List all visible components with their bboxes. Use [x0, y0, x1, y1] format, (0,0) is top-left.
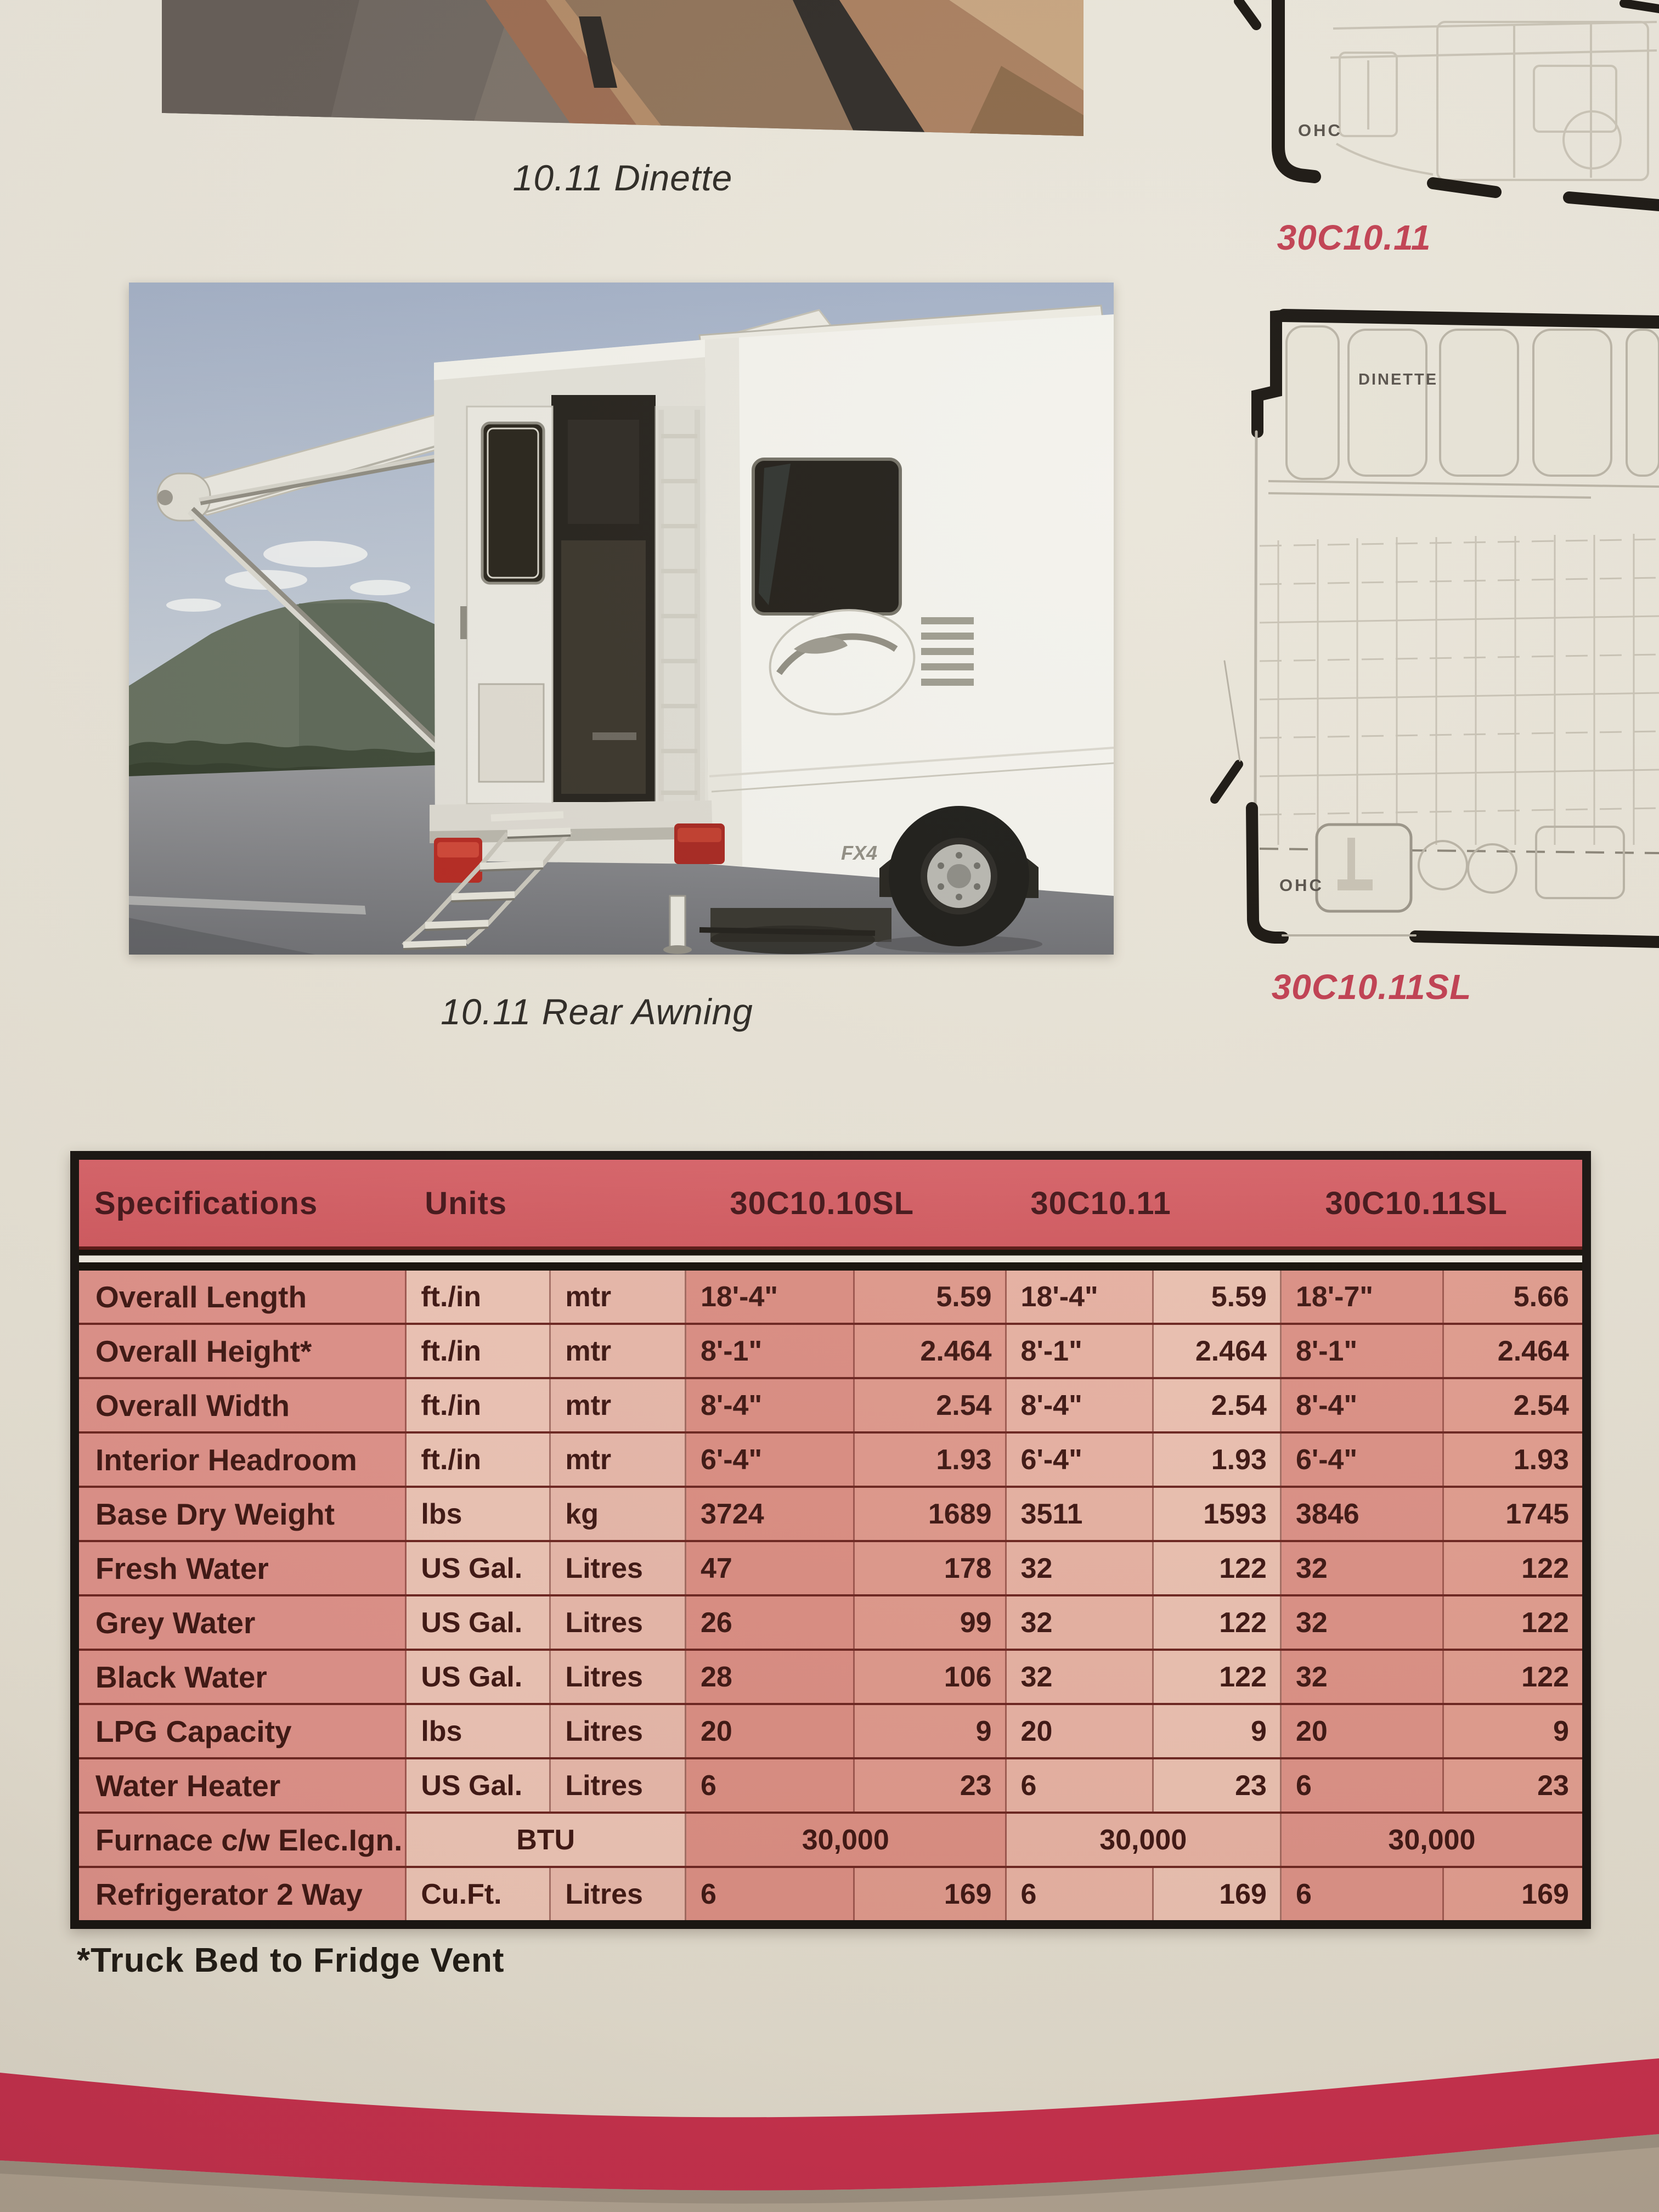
- spec-cell: 106: [855, 1651, 1007, 1703]
- spec-cell: 8'-1": [1282, 1325, 1444, 1377]
- spec-cell: 122: [1444, 1596, 1582, 1649]
- spec-cell: 30,000: [686, 1814, 1007, 1866]
- header-model-30c10-10sl: 30C10.10SL: [730, 1160, 914, 1246]
- dinette-photo-art: [162, 0, 1084, 136]
- spec-cell: 32: [1007, 1596, 1154, 1649]
- spec-cell: 20: [1282, 1705, 1444, 1757]
- page-bottom-edge: [0, 2030, 1659, 2212]
- spec-cell: ft./in: [407, 1434, 551, 1486]
- spec-cell: Interior Headroom: [79, 1434, 407, 1486]
- spec-cell: Water Heater: [79, 1759, 407, 1812]
- spec-cell: 3846: [1282, 1488, 1444, 1540]
- floorplan2-caption: 30C10.11SL: [1256, 967, 1487, 1007]
- spec-cell: Litres: [551, 1596, 686, 1649]
- spec-cell: lbs: [407, 1488, 551, 1540]
- spec-cell: 8'-4": [1007, 1379, 1154, 1431]
- spec-cell: 6: [1282, 1759, 1444, 1812]
- floorplan2-dinette-seats: [1286, 326, 1659, 479]
- spec-cell: Litres: [551, 1542, 686, 1594]
- table-row: Grey WaterUS Gal.Litres26993212232122: [79, 1596, 1582, 1651]
- spec-cell: 18'-4": [1007, 1271, 1154, 1323]
- header-units: Units: [425, 1160, 507, 1246]
- spec-cell: 8'-4": [686, 1379, 855, 1431]
- header-separator-band: [79, 1246, 1582, 1271]
- spec-cell: Cu.Ft.: [407, 1868, 551, 1920]
- spec-cell: 32: [1282, 1596, 1444, 1649]
- spec-cell: 122: [1444, 1651, 1582, 1703]
- spec-cell: 47: [686, 1542, 855, 1594]
- floorplan-30c10-11: [1207, 0, 1659, 211]
- spec-cell: 2.54: [855, 1379, 1007, 1431]
- spec-cell: 28: [686, 1651, 855, 1703]
- spec-cell: 32: [1282, 1651, 1444, 1703]
- floorplan2-ohc-label: OHC: [1279, 876, 1324, 895]
- spec-cell: kg: [551, 1488, 686, 1540]
- spec-cell: 169: [855, 1868, 1007, 1920]
- floorplan1-ohc-label: OHC: [1298, 121, 1342, 140]
- spec-cell: 3511: [1007, 1488, 1154, 1540]
- rear-awning-photo: FX4: [129, 283, 1114, 955]
- spec-cell: 32: [1007, 1542, 1154, 1594]
- fx4-decal: FX4: [841, 842, 877, 864]
- header-model-30c10-11: 30C10.11: [1030, 1160, 1171, 1246]
- spec-cell: mtr: [551, 1379, 686, 1431]
- table-row: Base Dry Weightlbskg37241689351115933846…: [79, 1488, 1582, 1542]
- floorplan1-walls: [1239, 0, 1659, 205]
- spec-cell: BTU: [407, 1814, 686, 1866]
- header-specifications: Specifications: [94, 1160, 318, 1246]
- undercarriage: [699, 908, 891, 954]
- spec-cell: 2.54: [1154, 1379, 1282, 1431]
- spec-cell: LPG Capacity: [79, 1705, 407, 1757]
- spec-cell: 9: [1154, 1705, 1282, 1757]
- floorplan1-fixtures: [1330, 22, 1657, 180]
- spec-cell: 1689: [855, 1488, 1007, 1540]
- spec-cell: 1.93: [1154, 1434, 1282, 1486]
- spec-cell: 9: [1444, 1705, 1582, 1757]
- table-row: Furnace c/w Elec.Ign.BTU30,00030,00030,0…: [79, 1814, 1582, 1868]
- spec-cell: 122: [1154, 1596, 1282, 1649]
- spec-cell: 122: [1154, 1542, 1282, 1594]
- spec-cell: mtr: [551, 1434, 686, 1486]
- table-row: Overall Lengthft./inmtr18'-4"5.5918'-4"5…: [79, 1271, 1582, 1325]
- spec-cell: 18'-4": [686, 1271, 855, 1323]
- spec-cell: Litres: [551, 1705, 686, 1757]
- spec-cell: 8'-1": [1007, 1325, 1154, 1377]
- camper-rear-door: [460, 395, 656, 804]
- spec-cell: lbs: [407, 1705, 551, 1757]
- rear-awning-caption: 10.11 Rear Awning: [323, 991, 871, 1032]
- spec-cell: mtr: [551, 1325, 686, 1377]
- spec-cell: 122: [1444, 1542, 1582, 1594]
- spec-cell: 1745: [1444, 1488, 1582, 1540]
- spec-cell: 32: [1007, 1651, 1154, 1703]
- table-row: LPG CapacitylbsLitres209209209: [79, 1705, 1582, 1759]
- spec-cell: 9: [855, 1705, 1007, 1757]
- spec-cell: 169: [1444, 1868, 1582, 1920]
- spec-cell: 169: [1154, 1868, 1282, 1920]
- spec-cell: 8'-1": [686, 1325, 855, 1377]
- spec-cell: 18'-7": [1282, 1271, 1444, 1323]
- floorplan2-sink: [1317, 825, 1411, 911]
- spec-cell: 122: [1154, 1651, 1282, 1703]
- table-row: Water HeaterUS Gal.Litres623623623: [79, 1759, 1582, 1814]
- dinette-photo: [162, 0, 1084, 136]
- spec-cell: 20: [1007, 1705, 1154, 1757]
- spec-table: Specifications Units 30C10.10SL 30C10.11…: [70, 1151, 1591, 1929]
- spec-cell: 30,000: [1007, 1814, 1282, 1866]
- spec-cell: 30,000: [1282, 1814, 1582, 1866]
- spec-cell: 2.464: [1444, 1325, 1582, 1377]
- spec-cell: 5.59: [1154, 1271, 1282, 1323]
- floorplan2-floor-grid: [1260, 534, 1659, 845]
- spec-cell: ft./in: [407, 1271, 551, 1323]
- spec-cell: 3724: [686, 1488, 855, 1540]
- spec-cell: US Gal.: [407, 1542, 551, 1594]
- brochure-page: 10.11 Dinette OHC 30C10.11: [0, 0, 1659, 2212]
- spec-cell: Litres: [551, 1759, 686, 1812]
- floorplan-30c10-11sl: [1207, 304, 1659, 955]
- spec-cell: 23: [855, 1759, 1007, 1812]
- table-row: Overall Height*ft./inmtr8'-1"2.4648'-1"2…: [79, 1325, 1582, 1379]
- spec-cell: ft./in: [407, 1379, 551, 1431]
- spec-cell: Litres: [551, 1651, 686, 1703]
- spec-cell: Base Dry Weight: [79, 1488, 407, 1540]
- table-row: Overall Widthft./inmtr8'-4"2.548'-4"2.54…: [79, 1379, 1582, 1434]
- spec-cell: Black Water: [79, 1651, 407, 1703]
- spec-cell: Litres: [551, 1868, 686, 1920]
- spec-cell: 2.54: [1444, 1379, 1582, 1431]
- spec-cell: 6: [1282, 1868, 1444, 1920]
- spec-cell: 2.464: [855, 1325, 1007, 1377]
- spec-cell: 6'-4": [1007, 1434, 1154, 1486]
- spec-cell: 1.93: [1444, 1434, 1582, 1486]
- spec-cell: 6'-4": [686, 1434, 855, 1486]
- spec-cell: 1593: [1154, 1488, 1282, 1540]
- spec-cell: ft./in: [407, 1325, 551, 1377]
- floorplan2-dinette-label: DINETTE: [1358, 371, 1438, 389]
- spec-cell: Furnace c/w Elec.Ign.: [79, 1814, 407, 1866]
- header-model-30c10-11sl: 30C10.11SL: [1325, 1160, 1507, 1246]
- table-footnote: *Truck Bed to Fridge Vent: [77, 1941, 504, 1980]
- dinette-photo-caption: 10.11 Dinette: [239, 157, 1007, 199]
- spec-cell: 2.464: [1154, 1325, 1282, 1377]
- floorplan2-burners: [1419, 827, 1624, 898]
- table-row: Refrigerator 2 WayCu.Ft.Litres6169616961…: [79, 1868, 1582, 1920]
- spec-cell: 6: [686, 1759, 855, 1812]
- spec-cell: 23: [1444, 1759, 1582, 1812]
- spec-cell: 32: [1282, 1542, 1444, 1594]
- floorplan2-rails: [1268, 481, 1659, 498]
- spec-cell: 178: [855, 1542, 1007, 1594]
- spec-cell: 5.59: [855, 1271, 1007, 1323]
- spec-cell: mtr: [551, 1271, 686, 1323]
- table-row: Interior Headroomft./inmtr6'-4"1.936'-4"…: [79, 1434, 1582, 1488]
- table-row: Fresh WaterUS Gal.Litres471783212232122: [79, 1542, 1582, 1596]
- spec-cell: 1.93: [855, 1434, 1007, 1486]
- spec-table-body: Overall Lengthft./inmtr18'-4"5.5918'-4"5…: [79, 1271, 1582, 1920]
- camper-ladder: [654, 406, 705, 812]
- spec-cell: US Gal.: [407, 1651, 551, 1703]
- spec-cell: 6: [686, 1868, 855, 1920]
- spec-cell: 23: [1154, 1759, 1282, 1812]
- spec-cell: 5.66: [1444, 1271, 1582, 1323]
- spec-cell: Overall Height*: [79, 1325, 407, 1377]
- floorplan1-caption: 30C10.11: [1244, 217, 1464, 258]
- spec-cell: 26: [686, 1596, 855, 1649]
- spec-cell: 20: [686, 1705, 855, 1757]
- spec-cell: 99: [855, 1596, 1007, 1649]
- spec-cell: Overall Width: [79, 1379, 407, 1431]
- spec-cell: Fresh Water: [79, 1542, 407, 1594]
- spec-cell: 8'-4": [1282, 1379, 1444, 1431]
- table-row: Black WaterUS Gal.Litres281063212232122: [79, 1651, 1582, 1705]
- spec-cell: Overall Length: [79, 1271, 407, 1323]
- spec-cell: 6'-4": [1282, 1434, 1444, 1486]
- spec-cell: US Gal.: [407, 1759, 551, 1812]
- spec-table-header: Specifications Units 30C10.10SL 30C10.11…: [79, 1160, 1582, 1246]
- spec-cell: 6: [1007, 1759, 1154, 1812]
- rear-awning-photo-art: FX4: [129, 283, 1114, 955]
- spec-cell: 6: [1007, 1868, 1154, 1920]
- spec-cell: Refrigerator 2 Way: [79, 1868, 407, 1920]
- spec-cell: US Gal.: [407, 1596, 551, 1649]
- spec-cell: Grey Water: [79, 1596, 407, 1649]
